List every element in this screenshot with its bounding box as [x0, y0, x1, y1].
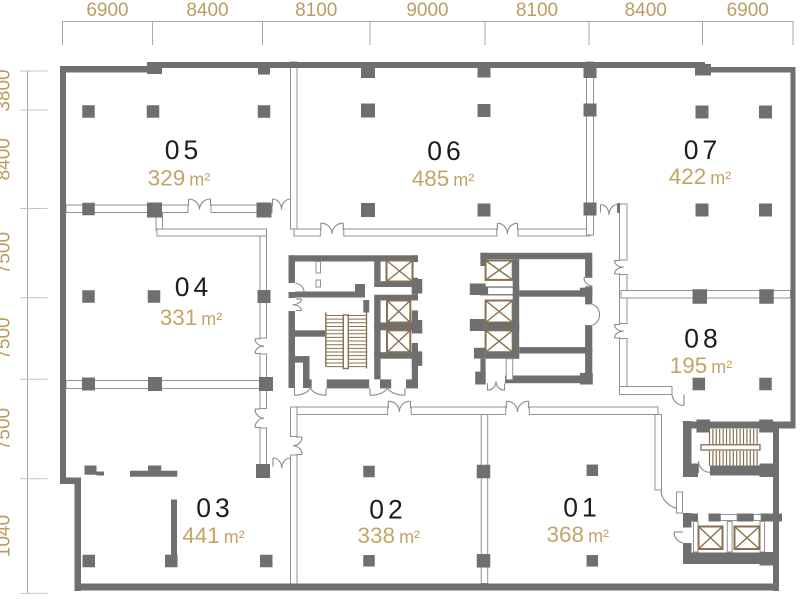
svg-text:368m²: 368m² — [547, 522, 610, 547]
svg-text:06: 06 — [427, 136, 464, 166]
svg-text:195m²: 195m² — [670, 353, 733, 378]
svg-text:1040: 1040 — [0, 515, 15, 557]
svg-text:8100: 8100 — [516, 0, 558, 21]
svg-text:03: 03 — [196, 493, 233, 523]
svg-text:441m²: 441m² — [182, 523, 245, 548]
svg-text:02: 02 — [369, 495, 406, 525]
svg-text:7500: 7500 — [0, 408, 15, 450]
svg-text:8400: 8400 — [625, 0, 667, 21]
svg-text:329m²: 329m² — [148, 166, 211, 191]
svg-text:6900: 6900 — [727, 0, 769, 21]
svg-text:6900: 6900 — [86, 0, 128, 21]
svg-text:422m²: 422m² — [669, 164, 732, 189]
svg-text:08: 08 — [684, 324, 721, 354]
svg-text:331m²: 331m² — [160, 305, 223, 330]
svg-text:3800: 3800 — [0, 69, 15, 111]
svg-text:05: 05 — [165, 135, 202, 165]
svg-text:8100: 8100 — [295, 0, 337, 21]
svg-text:01: 01 — [563, 493, 600, 523]
svg-text:485m²: 485m² — [412, 166, 475, 191]
svg-text:7500: 7500 — [0, 317, 15, 359]
svg-text:7500: 7500 — [0, 232, 15, 274]
svg-text:338m²: 338m² — [358, 523, 421, 548]
svg-text:07: 07 — [684, 135, 721, 165]
svg-text:8400: 8400 — [0, 138, 15, 180]
svg-text:04: 04 — [175, 272, 212, 302]
svg-text:9000: 9000 — [406, 0, 448, 21]
svg-text:8400: 8400 — [186, 0, 228, 21]
